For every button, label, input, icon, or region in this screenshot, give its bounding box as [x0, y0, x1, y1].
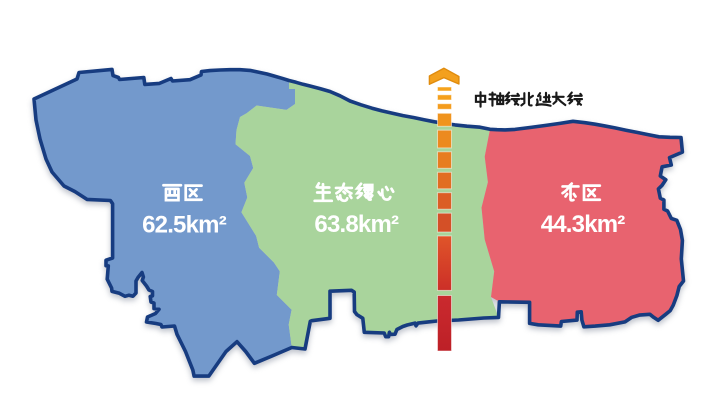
svg-text:63.8km²: 63.8km² [314, 211, 399, 238]
svg-text:62.5km²: 62.5km² [142, 212, 227, 239]
svg-text:44.3km²: 44.3km² [541, 211, 626, 238]
